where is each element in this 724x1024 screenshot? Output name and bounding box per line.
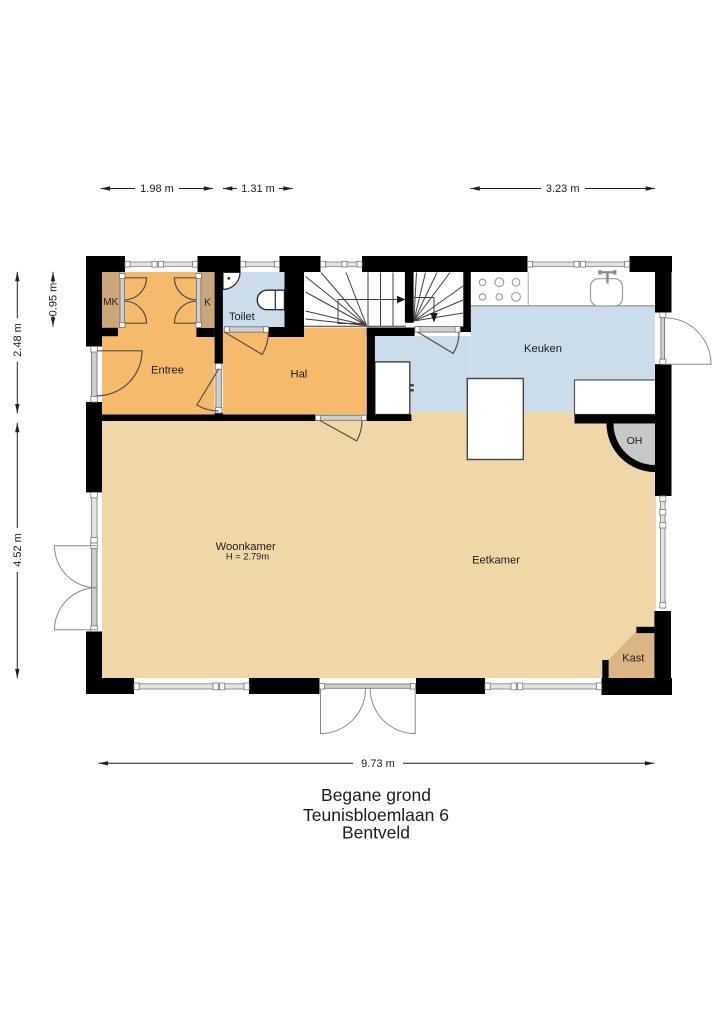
- svg-text:4.52 m: 4.52 m: [12, 533, 24, 567]
- svg-text:H = 2.79m: H = 2.79m: [226, 551, 269, 561]
- svg-text:Entree: Entree: [151, 364, 184, 376]
- svg-text:9.73 m: 9.73 m: [361, 758, 395, 770]
- svg-text:2.48 m: 2.48 m: [12, 323, 24, 357]
- svg-text:Toilet: Toilet: [229, 311, 255, 323]
- svg-text:Eetkamer: Eetkamer: [472, 555, 520, 567]
- svg-text:3.23 m: 3.23 m: [546, 183, 580, 195]
- svg-text:Begane grond: Begane grond: [321, 785, 431, 805]
- svg-text:Kast: Kast: [622, 653, 644, 665]
- svg-text:Keuken: Keuken: [524, 343, 562, 355]
- svg-text:1.31 m: 1.31 m: [241, 183, 275, 195]
- svg-text:OH: OH: [627, 435, 643, 447]
- svg-text:Bentveld: Bentveld: [342, 823, 410, 843]
- svg-text:0.95 m: 0.95 m: [48, 283, 60, 317]
- svg-text:1.98 m: 1.98 m: [140, 183, 174, 195]
- svg-text:K: K: [204, 298, 211, 309]
- svg-text:MK: MK: [103, 297, 118, 308]
- svg-text:Hal: Hal: [291, 369, 308, 381]
